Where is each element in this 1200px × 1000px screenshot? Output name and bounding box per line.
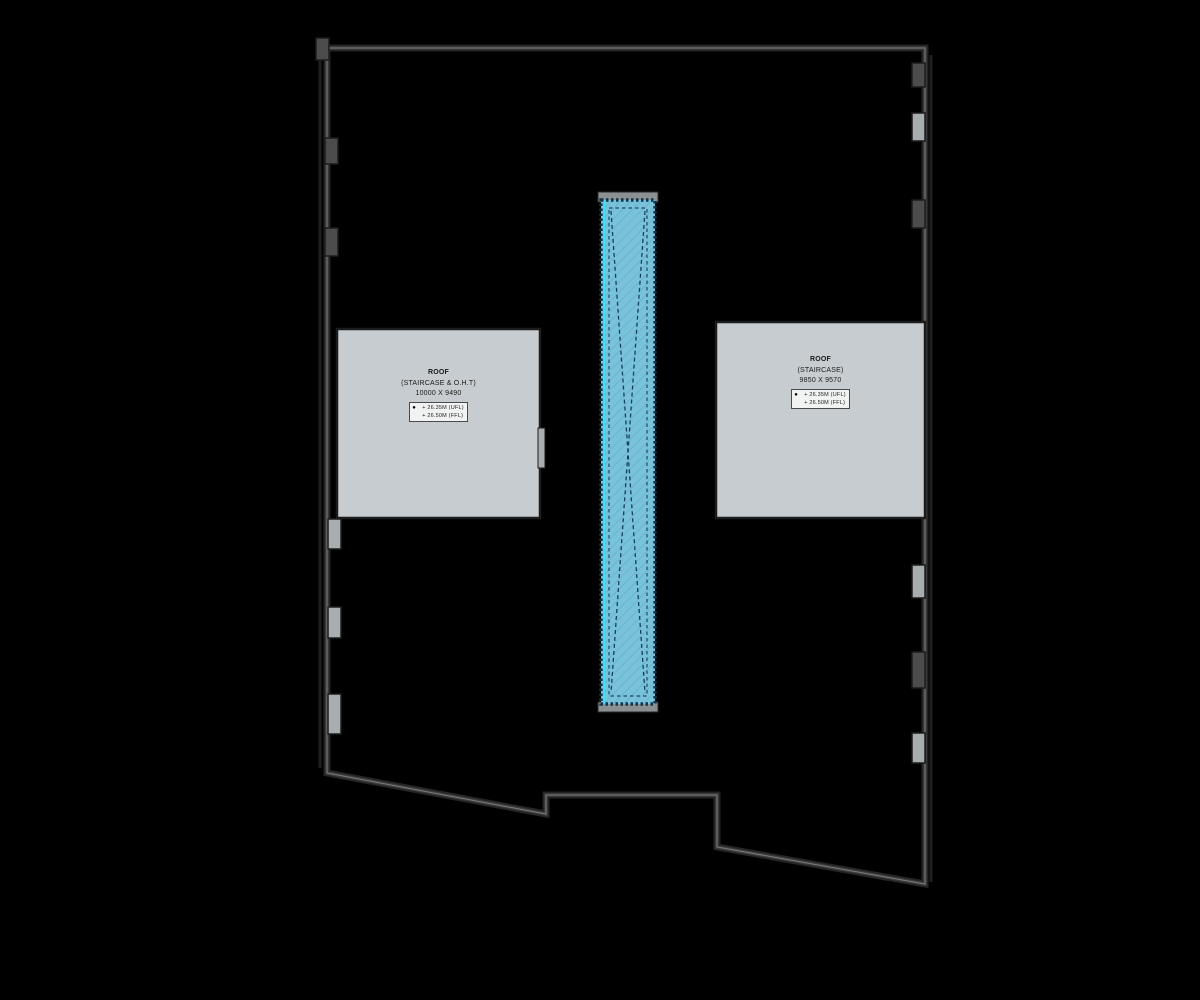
level-marker-icon: ● bbox=[412, 404, 416, 412]
roof-left-level-ffl: + 26.50M (FFL) bbox=[422, 412, 463, 420]
wall-tab bbox=[328, 694, 341, 734]
wall-tab bbox=[912, 565, 925, 598]
roof-label-right: ROOF (STAIRCASE) 9850 X 9570 ● + 26.35M … bbox=[716, 355, 925, 409]
roof-slab-left bbox=[337, 329, 545, 518]
wall-tab bbox=[328, 519, 341, 549]
roof-plan-canvas: ROOF (STAIRCASE & O.H.T) 10000 X 9490 ● … bbox=[0, 0, 1200, 1000]
wall-tab bbox=[538, 428, 545, 468]
roof-left-level-box: ● + 26.35M (UFL) + 26.50M (FFL) bbox=[409, 402, 467, 422]
wall-tab bbox=[912, 200, 925, 228]
roof-right-level-ufl: + 26.35M (UFL) bbox=[804, 391, 845, 399]
roof-left-subtitle: (STAIRCASE & O.H.T) bbox=[337, 379, 540, 390]
wall-tab bbox=[328, 607, 341, 638]
roof-plan-drawing bbox=[0, 0, 1200, 1000]
roof-left-title: ROOF bbox=[337, 368, 540, 379]
roof-right-subtitle: (STAIRCASE) bbox=[716, 366, 925, 377]
roof-left-level-ufl: + 26.35M (UFL) bbox=[422, 404, 463, 412]
wall-tab bbox=[325, 228, 338, 256]
wall-tab bbox=[912, 733, 925, 763]
roof-right-dimensions: 9850 X 9570 bbox=[716, 376, 925, 387]
wall-tab bbox=[316, 38, 329, 60]
roof-left-dimensions: 10000 X 9490 bbox=[337, 389, 540, 400]
skylight-strip bbox=[598, 192, 658, 712]
roof-right-level-box: ● + 26.35M (UFL) + 26.50M (FFL) bbox=[791, 389, 849, 409]
roof-right-title: ROOF bbox=[716, 355, 925, 366]
wall-tab bbox=[912, 63, 925, 87]
wall-tab bbox=[912, 652, 925, 688]
roof-right-level-ffl: + 26.50M (FFL) bbox=[804, 399, 845, 407]
level-marker-icon: ● bbox=[794, 391, 798, 399]
roof-label-left: ROOF (STAIRCASE & O.H.T) 10000 X 9490 ● … bbox=[337, 368, 540, 422]
wall-tab bbox=[912, 113, 925, 141]
roof-slab-right bbox=[716, 322, 925, 518]
wall-tab bbox=[325, 138, 338, 164]
